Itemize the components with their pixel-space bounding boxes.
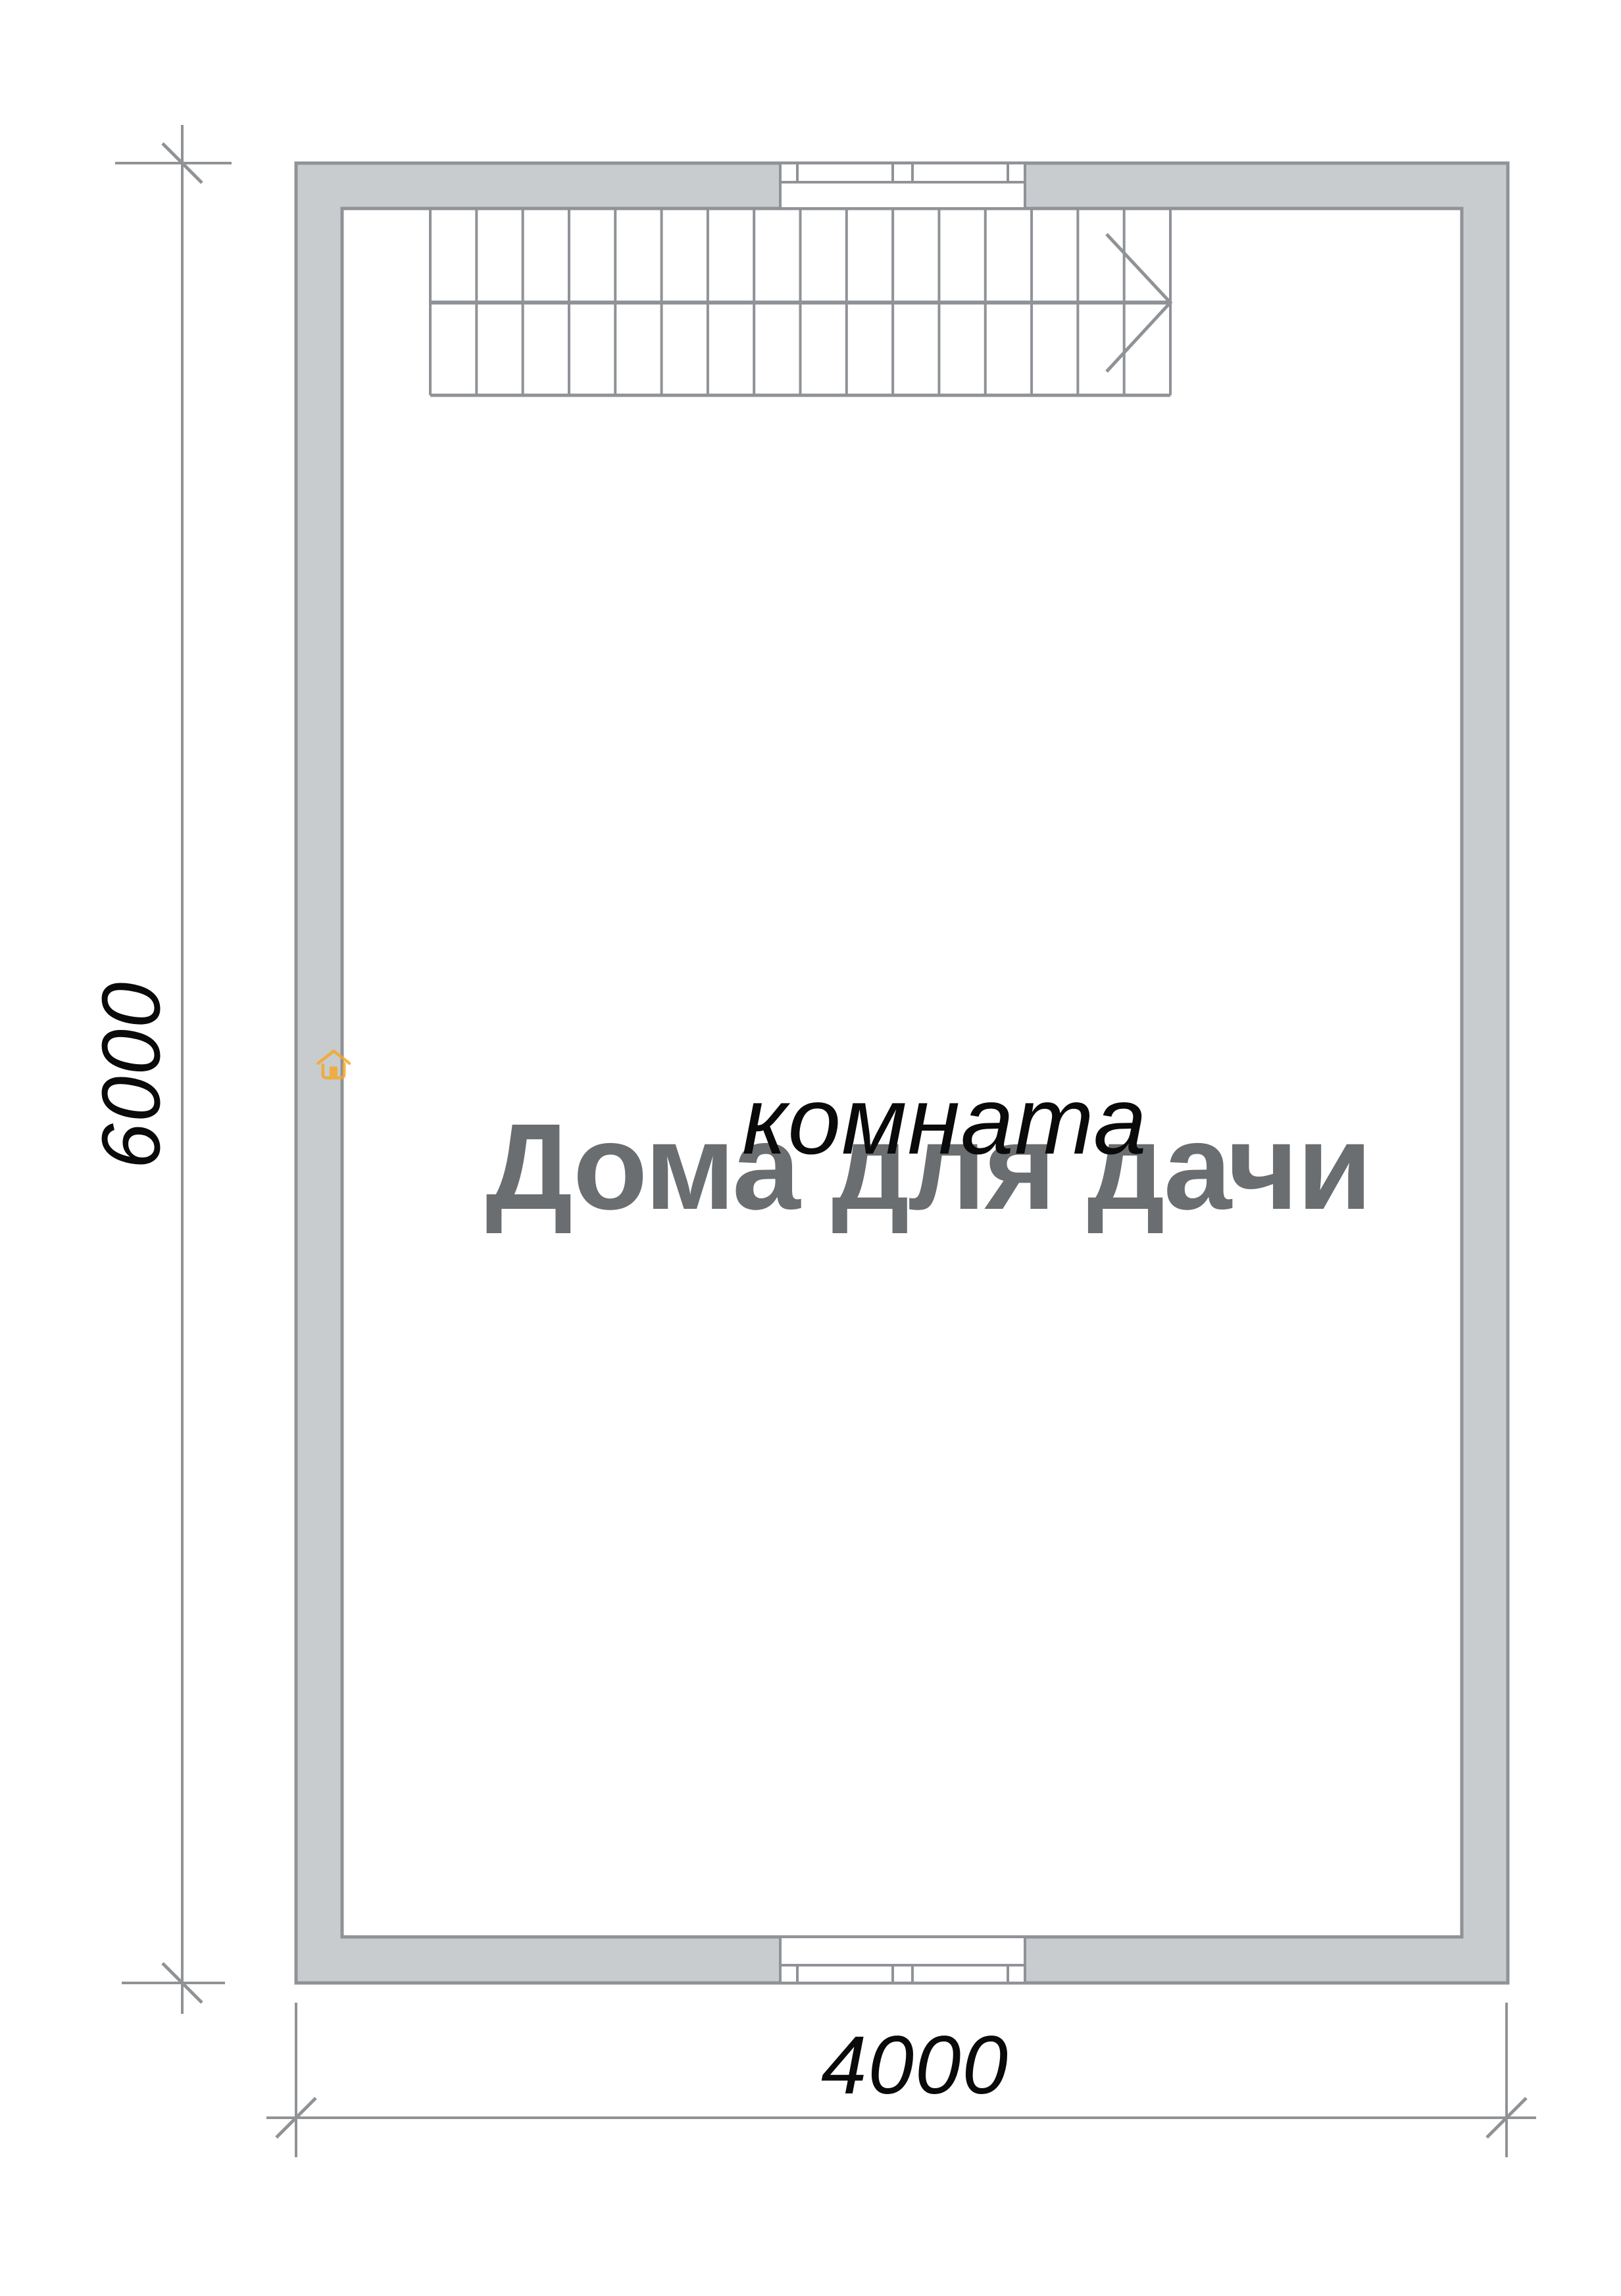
house-icon	[237, 1049, 467, 1246]
dim-height-label: 6000	[91, 977, 173, 1174]
house-roof	[318, 1051, 349, 1063]
window-bottom	[780, 1937, 1025, 1983]
window-top	[780, 163, 1025, 208]
dim-width-label: 4000	[821, 2024, 1009, 2107]
staircase	[430, 209, 1170, 395]
room-label: комната	[742, 1073, 1147, 1169]
floor-plan-page: Дома для дачи комната 6000 4000	[0, 0, 1621, 2296]
house-door	[330, 1067, 337, 1077]
